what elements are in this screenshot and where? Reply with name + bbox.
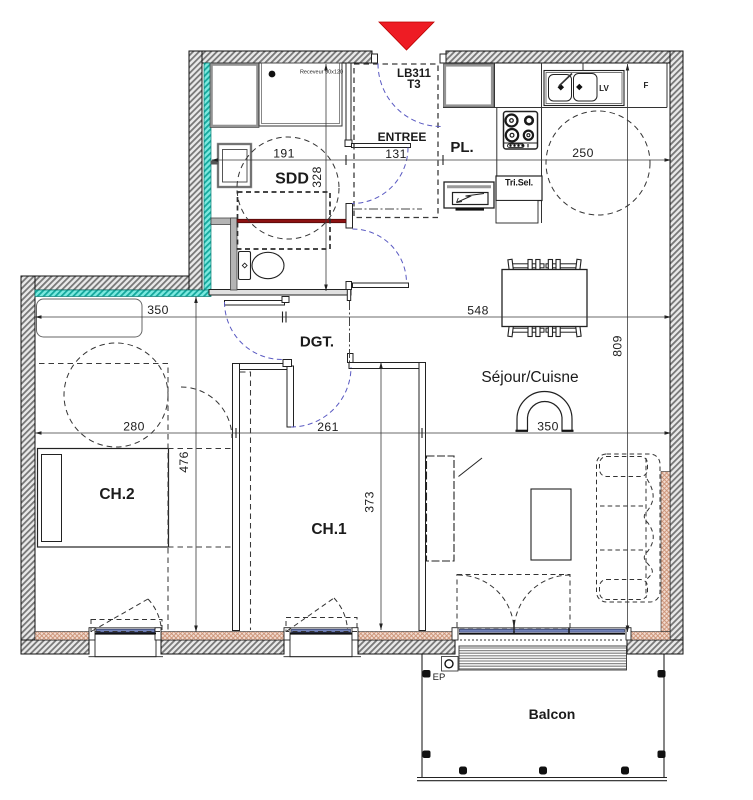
- svg-text:Receveur 90x120: Receveur 90x120: [300, 70, 343, 76]
- svg-text:350: 350: [537, 420, 559, 434]
- svg-text:131: 131: [385, 147, 407, 161]
- svg-text:LV: LV: [599, 84, 609, 93]
- svg-text:809: 809: [611, 335, 625, 357]
- svg-text:328: 328: [310, 166, 324, 188]
- svg-text:548: 548: [467, 304, 489, 318]
- svg-text:CH.1: CH.1: [311, 521, 347, 538]
- svg-text:ENTREE: ENTREE: [378, 130, 427, 144]
- svg-text:476: 476: [177, 451, 191, 473]
- svg-text:CH.2: CH.2: [99, 486, 134, 503]
- svg-text:T3: T3: [407, 79, 420, 91]
- svg-text:373: 373: [363, 491, 377, 513]
- svg-text:261: 261: [317, 420, 339, 434]
- svg-text:250: 250: [572, 146, 594, 160]
- svg-text:PL.: PL.: [450, 139, 473, 156]
- svg-text:350: 350: [147, 303, 169, 317]
- svg-text:EP: EP: [433, 672, 446, 683]
- svg-text:280: 280: [123, 420, 145, 434]
- svg-text:F: F: [644, 81, 649, 90]
- svg-text:DGT.: DGT.: [300, 334, 334, 351]
- svg-text:Séjour/Cuisne: Séjour/Cuisne: [481, 369, 578, 386]
- svg-text:Tri.Sel.: Tri.Sel.: [505, 178, 533, 188]
- svg-text:Balcon: Balcon: [529, 706, 576, 722]
- svg-text:SDD: SDD: [275, 171, 309, 188]
- svg-text:191: 191: [273, 147, 295, 161]
